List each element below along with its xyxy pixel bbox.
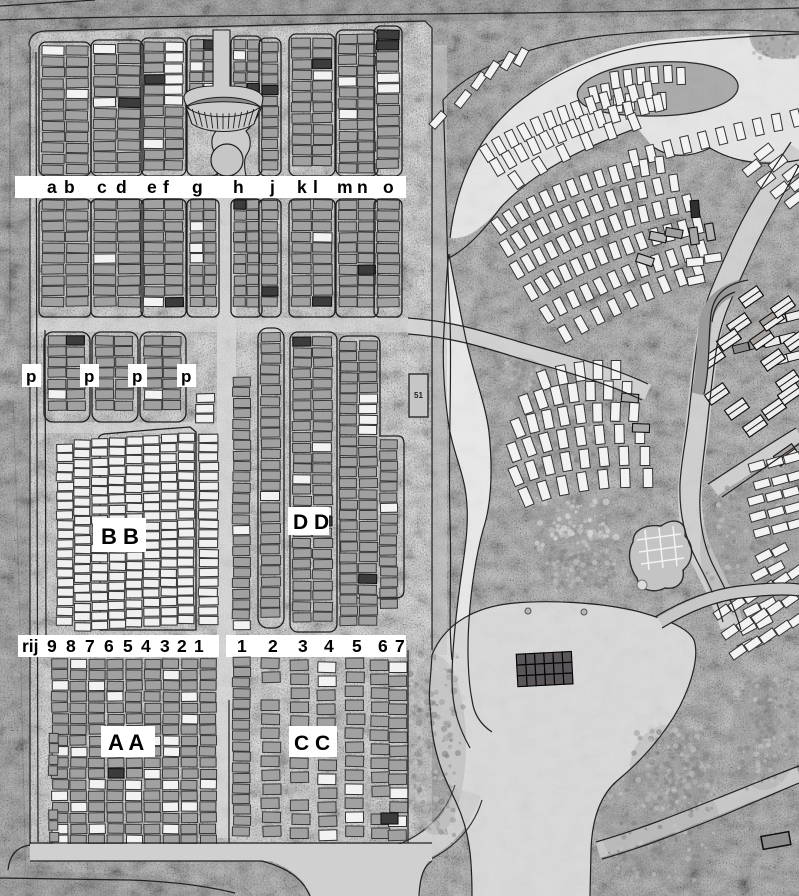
svg-text:D D: D D <box>293 511 329 534</box>
svg-text:B B: B B <box>101 524 139 549</box>
svg-text:C C: C C <box>294 732 330 755</box>
svg-text:p: p <box>84 367 94 386</box>
svg-text:A A: A A <box>108 730 144 755</box>
svg-text:rij 9 8 7 6 5 4 3 2 1: rij 9 8 7 6 5 4 3 2 1 <box>22 636 204 656</box>
svg-text:51: 51 <box>414 391 423 400</box>
svg-text:p: p <box>132 367 142 386</box>
svg-text:p: p <box>181 367 191 386</box>
svg-text:p: p <box>26 367 36 386</box>
